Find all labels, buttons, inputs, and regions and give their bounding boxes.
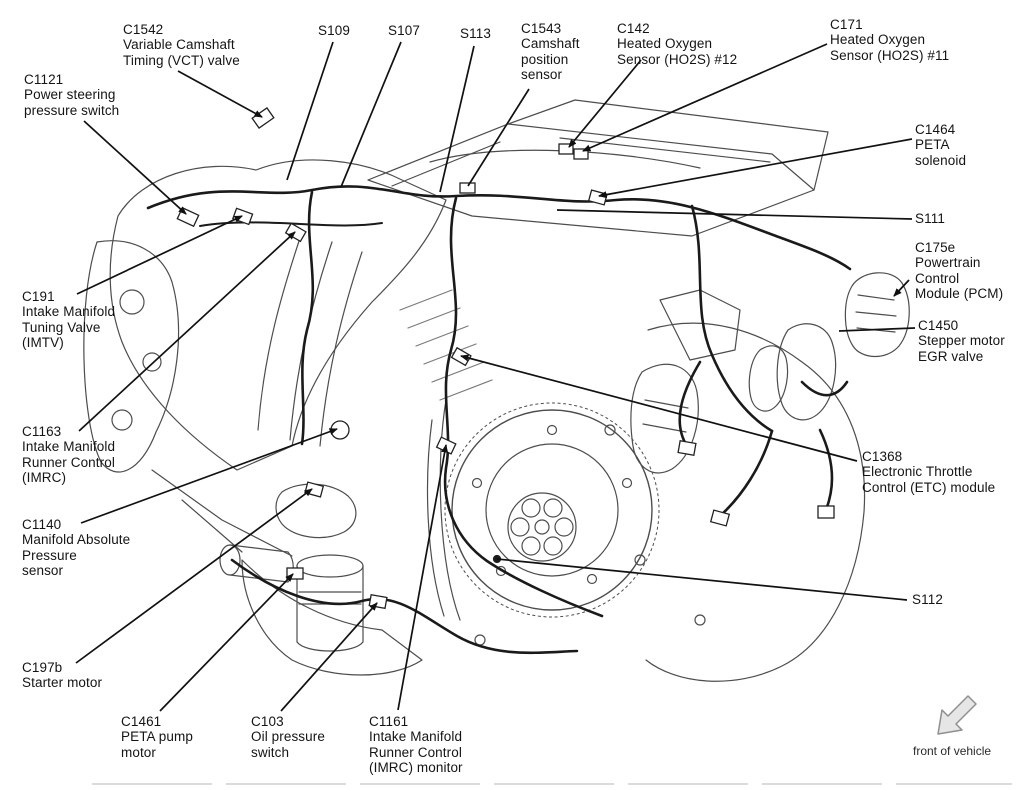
label-c1461: C1461 PETA pump motor	[121, 714, 193, 760]
label-c191: C191 Intake Manifold Tuning Valve (IMTV)	[22, 289, 115, 350]
front-of-vehicle-note: front of vehicle	[913, 744, 991, 758]
front-of-vehicle-arrow-icon	[938, 696, 976, 734]
label-c1450: C1450 Stepper motor EGR valve	[918, 318, 1005, 364]
label-c1543: C1543 Camshaft position sensor	[521, 21, 580, 82]
label-c197b: C197b Starter motor	[22, 660, 102, 691]
label-c103: C103 Oil pressure switch	[251, 714, 325, 760]
leader-lines	[76, 42, 915, 711]
label-c1140: C1140 Manifold Absolute Pressure sensor	[22, 517, 130, 578]
diagram-canvas: C1542 Variable Camshaft Timing (VCT) val…	[0, 0, 1035, 790]
harness-connectors	[177, 108, 834, 608]
label-s107: S107	[388, 23, 420, 38]
label-c1464: C1464 PETA solenoid	[915, 122, 966, 168]
label-s112: S112	[912, 592, 943, 607]
label-c1161: C1161 Intake Manifold Runner Control (IM…	[369, 714, 463, 775]
label-s113: S113	[460, 26, 491, 41]
label-c1542: C1542 Variable Camshaft Timing (VCT) val…	[123, 22, 240, 68]
engine-diagram-artwork	[0, 0, 1035, 790]
label-c1163: C1163 Intake Manifold Runner Control (IM…	[22, 424, 115, 485]
flywheel	[445, 403, 659, 617]
label-c142: C142 Heated Oxygen Sensor (HO2S) #12	[617, 21, 737, 67]
label-c175e: C175e Powertrain Control Module (PCM)	[915, 240, 1003, 301]
wiring-harness	[148, 186, 850, 652]
label-s111: S111	[915, 211, 945, 226]
engine-line-art	[84, 100, 909, 681]
label-c171: C171 Heated Oxygen Sensor (HO2S) #11	[830, 17, 949, 63]
label-c1121: C1121 Power steering pressure switch	[24, 72, 119, 118]
label-c1368: C1368 Electronic Throttle Control (ETC) …	[862, 449, 995, 495]
label-s109: S109	[318, 23, 350, 38]
